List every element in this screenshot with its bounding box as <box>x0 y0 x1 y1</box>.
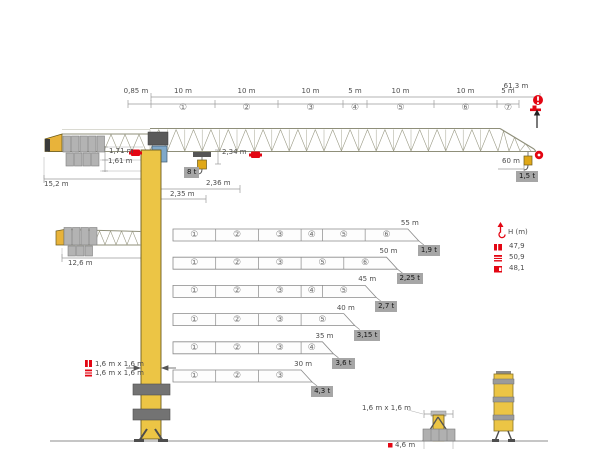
lattice-line <box>100 231 106 245</box>
static-base <box>423 411 455 441</box>
bar-length-label: 35 m <box>315 333 333 341</box>
dim-jib-foot-offset: 0,85 m <box>124 88 149 96</box>
mast-striped-icon <box>494 255 502 262</box>
bar-segment-number: ④ <box>308 344 316 353</box>
bar-segment-number: ② <box>233 372 241 381</box>
lattice-line <box>167 130 176 152</box>
bar-length-label: 50 m <box>380 248 398 256</box>
dim-segment-4-length: 5 m <box>348 88 362 96</box>
lattice-line <box>411 130 420 152</box>
bar-tip-load-badge: 3,6 t <box>332 358 354 369</box>
lattice-line <box>394 130 403 152</box>
bar-tip-load-badge: 1,9 t <box>418 245 440 256</box>
segment-4-number: ④ <box>351 104 359 113</box>
jib <box>150 129 536 152</box>
tip-hook <box>524 152 532 170</box>
bar-tip-load-badge: 2,7 t <box>375 301 397 312</box>
lattice-line <box>359 130 368 152</box>
lattice-line <box>211 130 220 152</box>
lattice-line <box>428 130 437 152</box>
bar-length-label: 45 m <box>358 276 376 284</box>
bar-segment-number: ④ <box>308 231 316 240</box>
counterjib <box>45 130 150 167</box>
mast <box>133 150 170 442</box>
dim-counterjib-radius: 15,2 m <box>44 181 69 189</box>
lattice-line <box>111 231 117 245</box>
lattice-line <box>341 130 350 152</box>
dim-hook-reach-b: 2,36 m <box>206 180 231 188</box>
height-value-2: 50,9 <box>509 254 525 262</box>
lattice-line <box>298 130 307 152</box>
trolley-travel-icon <box>530 106 541 112</box>
base-footprint-label: 1,6 m x 1,6 m <box>362 405 411 413</box>
lattice-line <box>246 130 255 152</box>
lattice-line <box>194 130 203 152</box>
bar-segment-number: ① <box>190 316 198 325</box>
height-value-3: 48,1 <box>509 265 525 273</box>
mast-legend-label-1: 1,6 m x 1,6 m <box>95 361 144 369</box>
lattice-line <box>272 130 281 152</box>
lattice-line <box>420 130 429 152</box>
bar-segment-number: ③ <box>276 372 284 381</box>
jib-lattice <box>150 130 531 152</box>
height-value-1: 47,9 <box>509 243 525 251</box>
mast-collar-upper <box>133 384 170 395</box>
bar-segment-number: ② <box>233 316 241 325</box>
lattice-line <box>116 231 122 245</box>
bar-segment-number: ④ <box>308 287 316 296</box>
jib-config-bar <box>173 314 355 326</box>
lattice-line <box>202 130 211 152</box>
dim-segment-6-length: 10 m <box>457 88 475 96</box>
lattice-line <box>376 130 385 152</box>
short-counterjib-lattice <box>94 231 138 245</box>
dim-cab-height: 1,61 m <box>108 158 133 166</box>
bar-segment-number: ③ <box>276 231 284 240</box>
lattice-line <box>185 130 194 152</box>
dim-tip-radius: 60 m <box>502 158 520 166</box>
segment-7-number: ⑦ <box>504 104 512 113</box>
bar-segment-number: ③ <box>276 287 284 296</box>
bar-segment-number: ⑤ <box>340 287 348 296</box>
lattice-line <box>127 231 133 245</box>
dim-segment-5-length: 10 m <box>392 88 410 96</box>
lattice-line <box>254 130 263 152</box>
dim-segment-3-length: 10 m <box>302 88 320 96</box>
bar-tip-load-badge: 3,15 t <box>354 330 381 341</box>
lattice-line <box>402 130 411 152</box>
dim-trolley-height: 2,34 m <box>222 149 247 157</box>
dim-segment-1-length: 10 m <box>174 88 192 96</box>
bar-segment-number: ② <box>233 287 241 296</box>
dim-segment-2-length: 10 m <box>238 88 256 96</box>
bar-segment-number: ⑤ <box>318 316 326 325</box>
bar-tip-load-badge: 2,25 t <box>397 273 424 284</box>
lattice-line <box>481 130 490 152</box>
lattice-line <box>489 130 498 152</box>
lattice-line <box>509 137 515 151</box>
bar-segment-number: ⑤ <box>318 259 326 268</box>
folded-mast-stack <box>492 371 515 442</box>
bar-segment-number: ① <box>190 259 198 268</box>
bar-length-label: 30 m <box>294 361 312 369</box>
tip-load-icon <box>535 151 543 159</box>
segment-3-number: ③ <box>306 104 314 113</box>
hook-travel-arrow <box>534 110 540 129</box>
lattice-line <box>350 130 359 152</box>
info-icon <box>533 95 543 105</box>
dim-jib-height: 1,71 m <box>109 148 134 156</box>
segment-5-number: ⑤ <box>396 104 404 113</box>
lattice-line <box>133 231 139 245</box>
height-table-header: H (m) <box>508 229 528 237</box>
lattice-line <box>289 130 298 152</box>
lattice-line <box>463 130 472 152</box>
lattice-line <box>105 231 111 245</box>
lattice-line <box>324 130 333 152</box>
lattice-line <box>281 130 290 152</box>
lattice-line <box>307 130 316 152</box>
diagram-artwork <box>0 0 600 450</box>
bar-segment-number: ⑥ <box>382 231 390 240</box>
max-load-badge: 8 t <box>184 167 199 178</box>
segment-6-number: ⑥ <box>461 104 469 113</box>
bar-segment-number: ⑤ <box>340 231 348 240</box>
bar-segment-number: ③ <box>276 316 284 325</box>
bar-segment-number: ③ <box>276 344 284 353</box>
bar-segment-number: ③ <box>276 259 284 268</box>
crane-diagram: 0,85 m 10 m 10 m 10 m 5 m 10 m 10 m 5 m … <box>0 0 600 450</box>
hook-height-icon <box>498 222 506 238</box>
lattice-line <box>122 231 128 245</box>
bar-segment-number: ② <box>233 259 241 268</box>
lattice-line <box>139 135 146 152</box>
mast-collar-lower <box>133 409 170 420</box>
lattice-line <box>385 130 394 152</box>
dim-counterjib-radius-short: 12,6 m <box>68 260 93 268</box>
tip-load-badge: 1,5 t <box>516 171 538 182</box>
lattice-line <box>472 130 481 152</box>
mast-notched-icon <box>494 266 502 273</box>
below-ground-icon <box>388 443 393 448</box>
bar-length-label: 40 m <box>337 305 355 313</box>
lattice-line <box>368 130 377 152</box>
bar-segment-number: ⑥ <box>361 259 369 268</box>
lattice-line <box>333 130 342 152</box>
bar-segment-number: ① <box>190 287 198 296</box>
lattice-line <box>315 130 324 152</box>
bar-segment-number: ① <box>190 372 198 381</box>
lattice-line <box>455 130 464 152</box>
lattice-line <box>520 144 526 151</box>
bar-segment-number: ① <box>190 231 198 240</box>
bar-segment-number: ① <box>190 344 198 353</box>
legend-mast-solid-icon <box>85 360 92 367</box>
legend-mast-striped-icon <box>85 370 92 377</box>
lattice-line <box>498 131 504 151</box>
bar-segment-number: ② <box>233 231 241 240</box>
dim-hook-reach-a: 2,35 m <box>170 191 195 199</box>
lattice-line <box>263 130 272 152</box>
bar-tip-load-badge: 4,3 t <box>311 386 333 397</box>
bar-segment-number: ② <box>233 344 241 353</box>
trolley-icon-2 <box>249 152 262 159</box>
counterweights <box>63 136 105 166</box>
below-ground-depth: 4,6 m <box>395 442 415 450</box>
lattice-line <box>437 130 446 152</box>
segment-2-number: ② <box>242 104 250 113</box>
lattice-line <box>446 130 455 152</box>
bar-length-label: 55 m <box>401 220 419 228</box>
segment-1-number: ① <box>179 104 187 113</box>
mast-solid-icon <box>494 244 502 251</box>
dim-overall-length: 61,3 m <box>504 83 529 91</box>
mast-legend-label-2: 1,6 m x 1,6 m <box>95 370 144 378</box>
lattice-line <box>176 130 185 152</box>
